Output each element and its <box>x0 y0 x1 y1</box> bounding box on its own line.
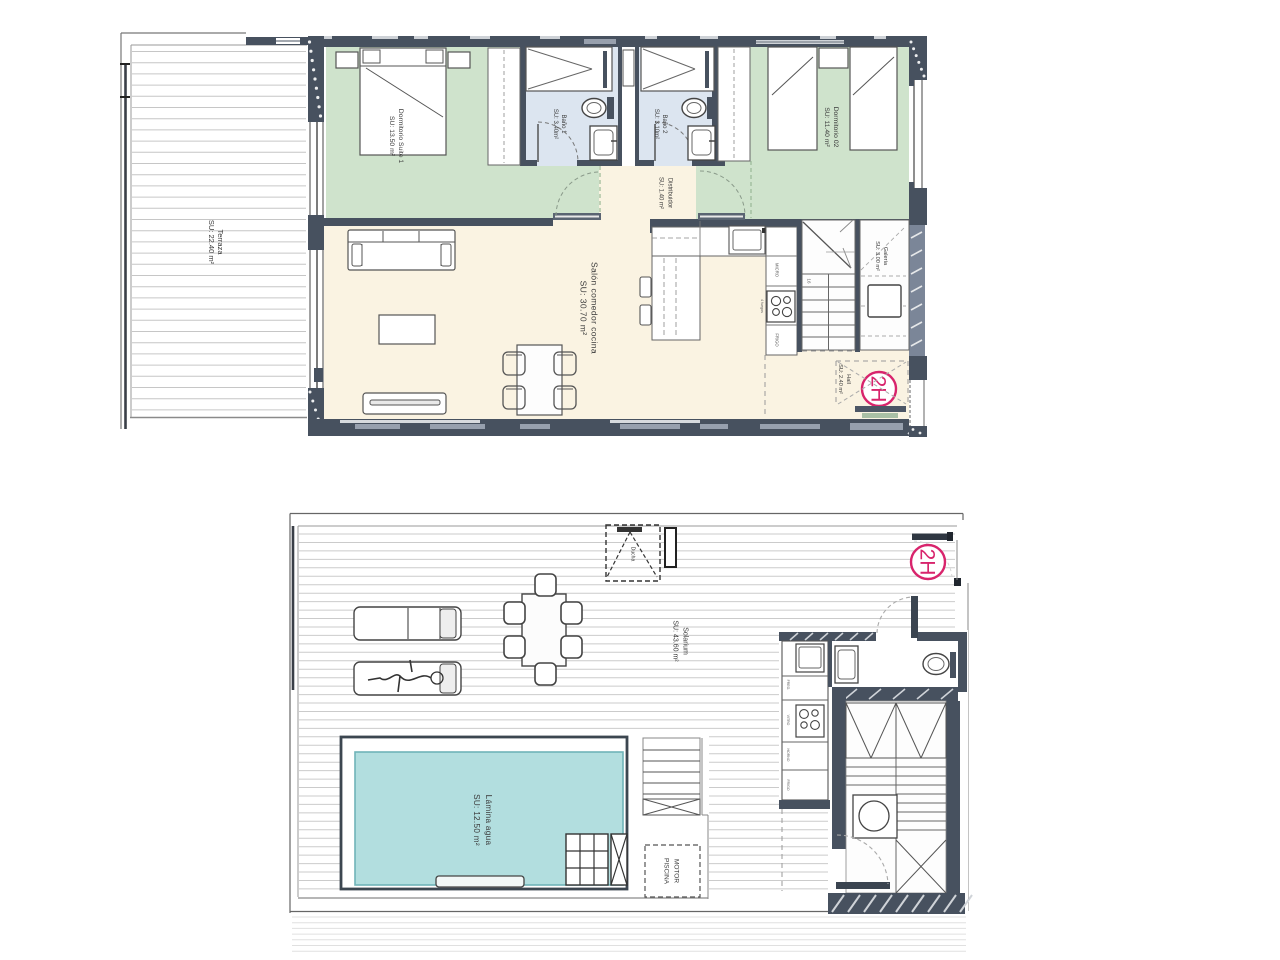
svg-text:SU: 3.00 m²: SU: 3.00 m² <box>874 241 880 271</box>
svg-text:MICRO: MICRO <box>775 263 780 278</box>
svg-text:SU: 12.50 m²: SU: 12.50 m² <box>472 794 481 846</box>
svg-text:2H: 2H <box>916 549 939 576</box>
svg-text:Baño 2: Baño 2 <box>661 114 667 134</box>
svg-text:Terraza: Terraza <box>216 229 225 255</box>
svg-text:Dormitorio 02: Dormitorio 02 <box>832 107 839 148</box>
svg-text:PISCINA: PISCINA <box>663 858 670 885</box>
svg-text:FREG.: FREG. <box>786 680 790 691</box>
svg-text:SU: 13.50 m²: SU: 13.50 m² <box>388 116 395 157</box>
svg-text:Salón comedor cocina: Salón comedor cocina <box>590 262 600 354</box>
svg-text:FRIGO: FRIGO <box>786 779 790 790</box>
svg-text:Lámina agua: Lámina agua <box>484 795 493 846</box>
svg-text:2H: 2H <box>867 376 890 403</box>
svg-text:4 fuegos: 4 fuegos <box>760 299 764 313</box>
svg-text:SU: 43.60 m²: SU: 43.60 m² <box>672 620 679 662</box>
svg-text:SU: 3.10m²: SU: 3.10m² <box>653 109 659 139</box>
svg-text:Galería: Galería <box>882 247 888 266</box>
svg-text:FRIGO: FRIGO <box>775 333 780 347</box>
svg-text:16: 16 <box>806 278 811 284</box>
svg-text:VITRO: VITRO <box>786 715 790 726</box>
svg-text:MOTOR: MOTOR <box>673 859 680 883</box>
svg-text:SU: 11.40 m²: SU: 11.40 m² <box>823 107 830 147</box>
svg-text:Distribuidor: Distribuidor <box>666 178 672 208</box>
svg-text:SU: 1.40 m²: SU: 1.40 m² <box>657 177 663 209</box>
svg-text:Ducha: Ducha <box>629 547 635 562</box>
svg-text:SU: 30.70 m²: SU: 30.70 m² <box>579 281 589 336</box>
svg-text:HORNO: HORNO <box>786 748 790 761</box>
svg-text:SU: 2.40 m²: SU: 2.40 m² <box>837 364 843 394</box>
svg-text:Solarium: Solarium <box>682 627 689 655</box>
svg-text:SU: 3.40m²: SU: 3.40m² <box>552 109 558 139</box>
svg-text:Hall: Hall <box>845 374 851 384</box>
svg-text:Dormitorio Suite 1: Dormitorio Suite 1 <box>397 109 404 164</box>
svg-text:Baño 1: Baño 1 <box>560 114 566 134</box>
svg-text:SU: 22.40 m²: SU: 22.40 m² <box>207 220 216 265</box>
